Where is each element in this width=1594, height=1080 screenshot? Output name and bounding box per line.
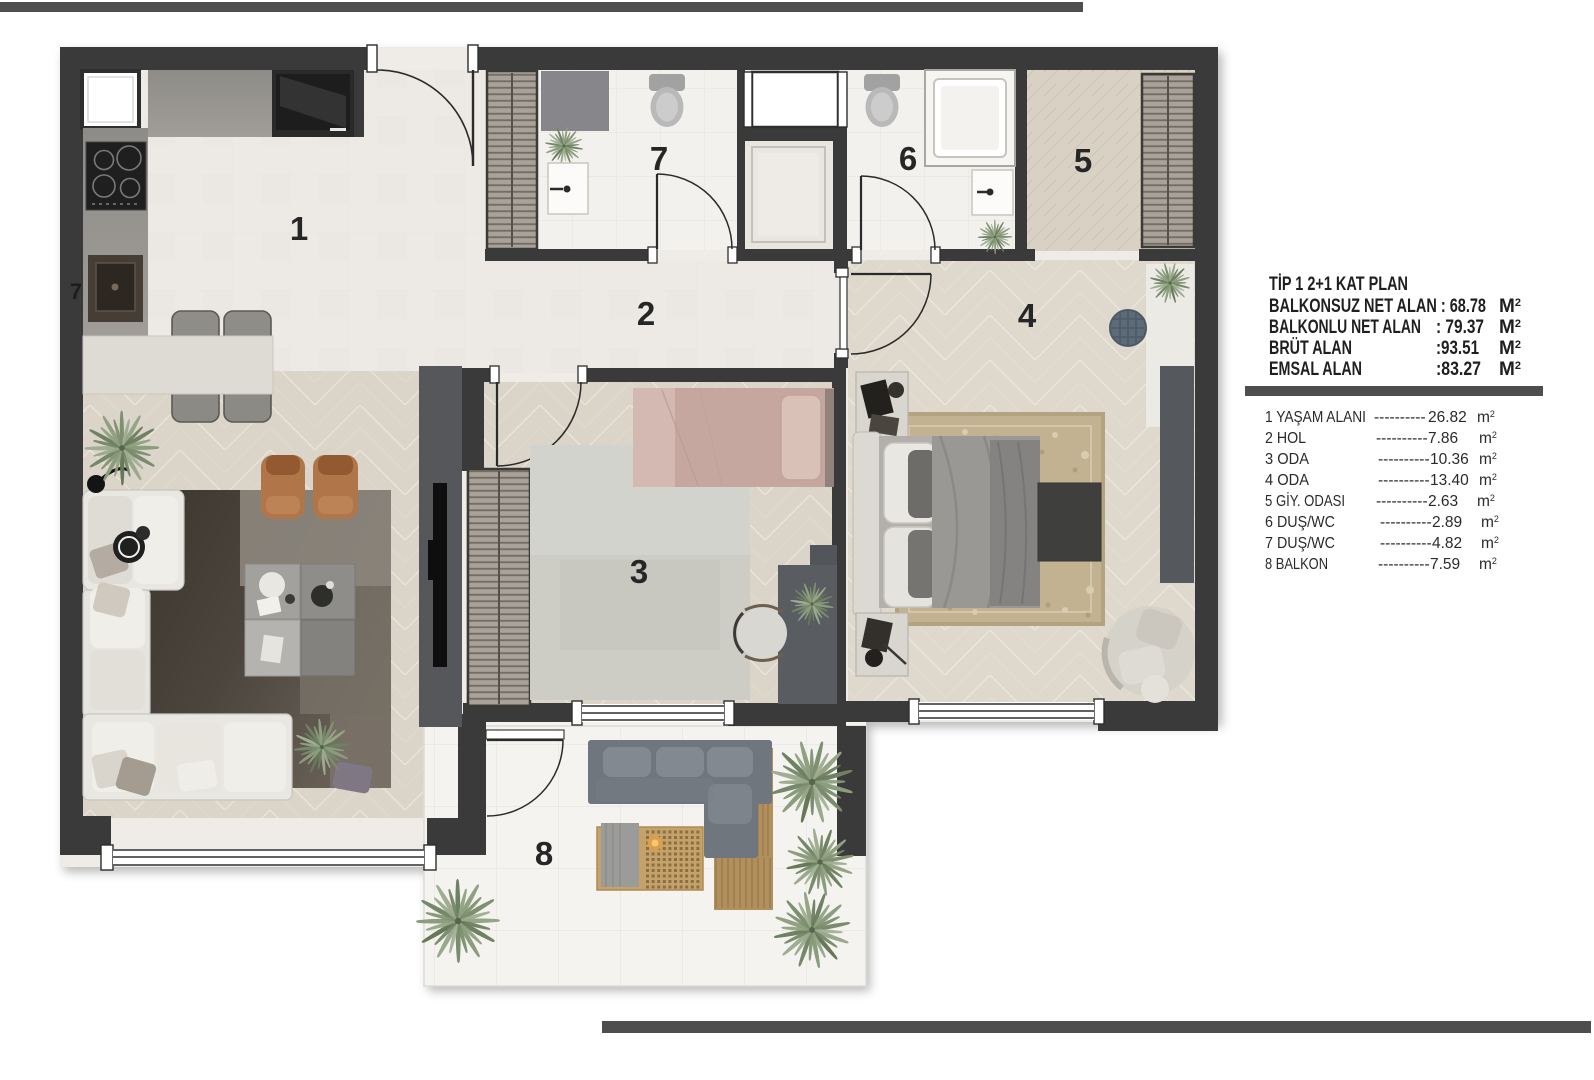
svg-text:2: 2 [637,295,655,332]
svg-text:----------: ---------- [1380,514,1432,531]
svg-text:7: 7 [650,140,668,177]
svg-text:----------: ---------- [1376,493,1428,510]
svg-text:----------: ---------- [1376,430,1428,447]
svg-text:7.86: 7.86 [1428,430,1458,447]
svg-text:----------: ---------- [1378,472,1430,489]
svg-text:2 HOL: 2 HOL [1265,430,1306,447]
svg-text:8: 8 [535,835,553,872]
svg-text:3 ODA: 3 ODA [1265,451,1310,468]
svg-text:13.40: 13.40 [1430,472,1469,489]
svg-text:8 BALKON: 8 BALKON [1265,556,1328,573]
svg-text:3: 3 [630,553,648,590]
svg-text::83.27: :83.27 [1436,359,1481,380]
svg-text:6: 6 [899,140,917,177]
svg-text:BRÜT ALAN: BRÜT ALAN [1269,338,1352,359]
svg-text:4: 4 [1018,297,1037,334]
svg-text:BALKONSUZ NET ALAN : 68.78: BALKONSUZ NET ALAN : 68.78 [1269,296,1486,317]
svg-text:2.63: 2.63 [1428,493,1458,510]
svg-text:7.59: 7.59 [1430,556,1460,573]
svg-text:26.82: 26.82 [1428,409,1467,426]
svg-text:----------: ---------- [1378,556,1430,573]
svg-text::93.51: :93.51 [1436,338,1479,359]
svg-text:4.82: 4.82 [1432,535,1462,552]
svg-text:TİP 1 2+1 KAT PLAN: TİP 1 2+1 KAT PLAN [1269,274,1408,295]
svg-text:----------: ---------- [1378,451,1430,468]
svg-text:10.36: 10.36 [1430,451,1469,468]
svg-text:: 79.37: : 79.37 [1436,317,1484,338]
svg-text:7 DUŞ/WC: 7 DUŞ/WC [1265,535,1335,552]
svg-text:4 ODA: 4 ODA [1265,472,1310,489]
svg-text:1: 1 [290,210,308,247]
svg-text:7: 7 [70,279,82,304]
svg-text:BALKONLU NET ALAN: BALKONLU NET ALAN [1269,317,1421,338]
svg-text:2.89: 2.89 [1432,514,1462,531]
svg-text:5: 5 [1074,142,1092,179]
svg-text:6 DUŞ/WC: 6 DUŞ/WC [1265,514,1335,531]
svg-text:----------: ---------- [1380,535,1432,552]
svg-text:1 YAŞAM ALANI: 1 YAŞAM ALANI [1265,409,1366,426]
svg-text:5 GİY. ODASI: 5 GİY. ODASI [1265,492,1345,510]
svg-text:----------: ---------- [1374,409,1426,426]
svg-text:EMSAL ALAN: EMSAL ALAN [1269,359,1362,380]
